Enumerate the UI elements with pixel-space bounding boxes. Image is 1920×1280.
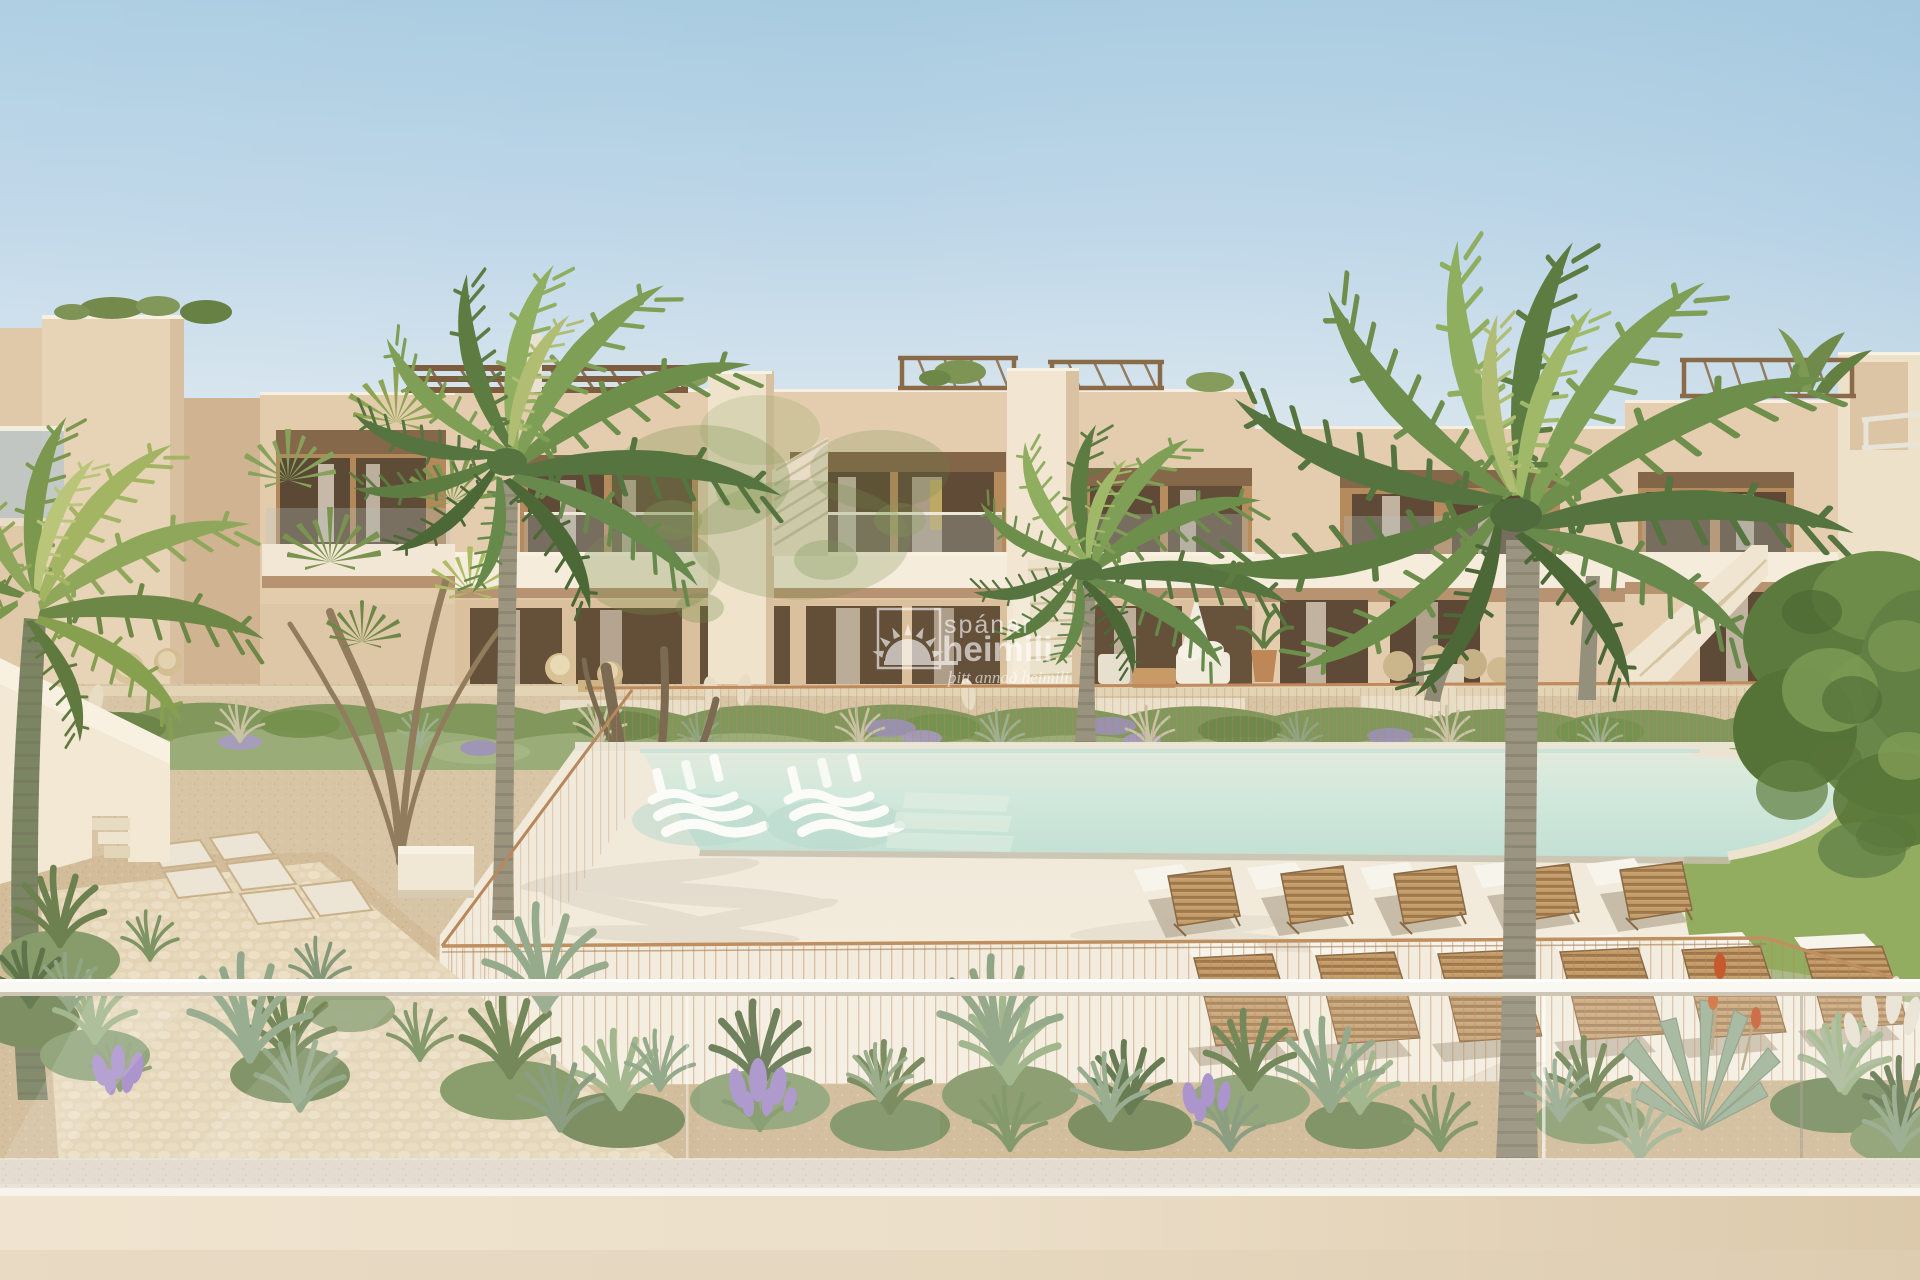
svg-text:þitt annað heimili: þitt annað heimili [946,668,1069,687]
svg-text:heimili: heimili [942,630,1053,669]
